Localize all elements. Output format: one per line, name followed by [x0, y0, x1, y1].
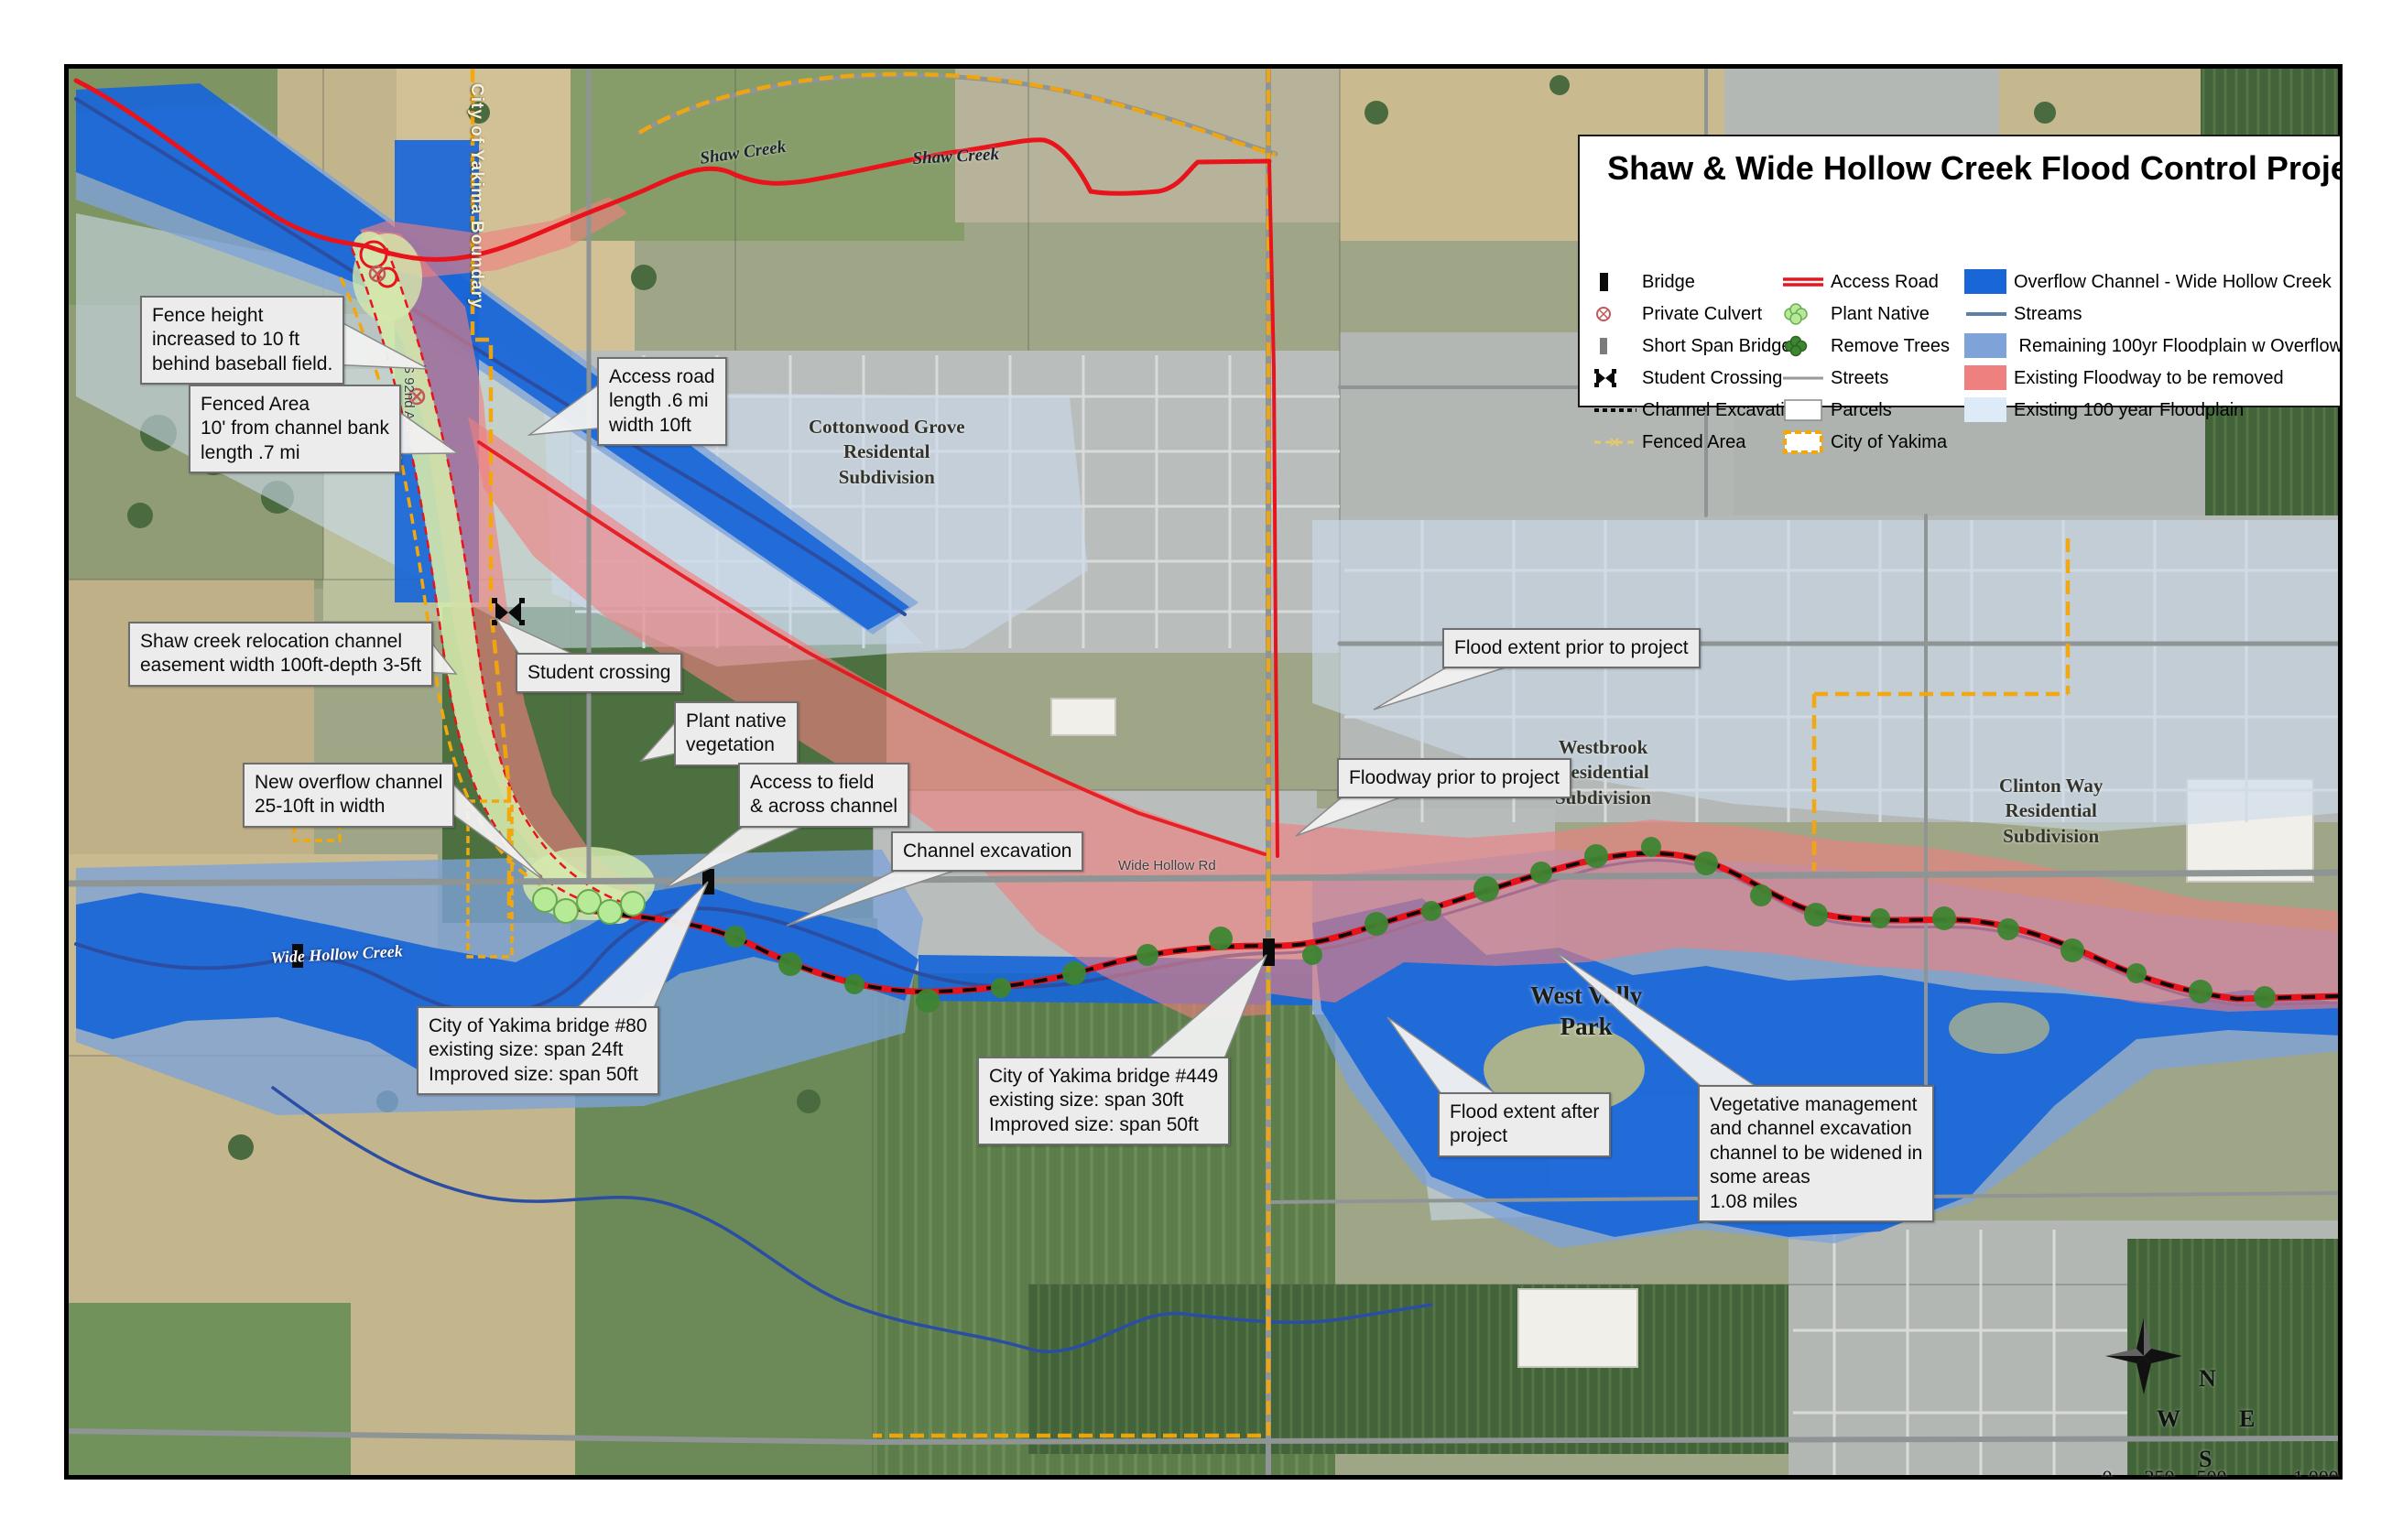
callout-student-crossing: Student crossing: [516, 653, 682, 693]
legend-item: Overflow Channel - Wide Hollow Creek: [1964, 270, 2343, 294]
legend-item-label: Student Crossing: [1642, 368, 1782, 389]
callout-line: easement width 100ft-depth 3-5ft: [140, 654, 421, 678]
callout-shaw-relocation: Shaw creek relocation channeleasement wi…: [128, 622, 433, 687]
callout-line: vegetation: [686, 733, 787, 757]
legend-item: City of Yakima: [1781, 430, 1961, 454]
callout-line: existing size: span 24ft: [429, 1038, 647, 1062]
legend-item: Streets: [1781, 366, 1961, 390]
legend-item-label: City of Yakima: [1831, 432, 1947, 453]
legend-item-label: Plant Native: [1831, 304, 1930, 325]
legend-item: Existing 100 year Floodplain: [1964, 398, 2343, 422]
callout-line: project: [1450, 1124, 1599, 1148]
callout-line: Channel excavation: [903, 840, 1071, 863]
callout-fence-height: Fence heightincreased to 10 ftbehind bas…: [140, 296, 344, 385]
callout-line: Improved size: span 50ft: [429, 1063, 647, 1087]
callout-line: length .7 mi: [201, 441, 389, 465]
callout-line: Flood extent prior to project: [1454, 636, 1689, 660]
legend-item-label: Remaining 100yr Floodplain w Overflow Ch…: [2014, 336, 2343, 357]
legend-item: Private Culvert: [1593, 302, 1776, 326]
callout-line: Fenced Area: [201, 393, 389, 417]
map-canvas: Shaw CreekShaw CreekWide Hollow CreekWes…: [64, 64, 2343, 1480]
plant-native-icon: [1781, 301, 1831, 327]
legend-title: Shaw & Wide Hollow Creek Flood Control P…: [1580, 149, 2343, 188]
city-of-yakima-icon: [1781, 429, 1831, 455]
callout-line: Access road: [609, 365, 715, 389]
callout-fenced-area: Fenced Area10' from channel banklength .…: [189, 385, 401, 473]
callout-line: Improved size: span 50ft: [989, 1113, 1218, 1137]
callout-line: channel to be widened in: [1710, 1142, 1922, 1166]
callout-vegetative-management: Vegetative managementand channel excavat…: [1698, 1085, 1934, 1222]
access-road-icon: [1781, 269, 1831, 295]
callout-line: 10' from channel bank: [201, 417, 389, 440]
callout-line: Access to field: [750, 771, 897, 795]
legend-item: Streams: [1964, 302, 2343, 326]
callout-line: Flood extent after: [1450, 1101, 1599, 1124]
legend-item: Parcels: [1781, 398, 1961, 422]
callout-line: Vegetative management: [1710, 1093, 1922, 1117]
legend-item-label: Streets: [1831, 368, 1888, 389]
legend-item: Plant Native: [1781, 302, 1961, 326]
callout-line: some areas: [1710, 1166, 1922, 1189]
legend-item: Fenced Area: [1593, 430, 1776, 454]
legend-area-column: Overflow Channel - Wide Hollow CreekStre…: [1964, 270, 2343, 422]
overflow-channel-swatch: [1964, 269, 2014, 295]
legend-item-label: Existing 100 year Floodplain: [2014, 400, 2244, 421]
legend-panel: Shaw & Wide Hollow Creek Flood Control P…: [1578, 135, 2343, 407]
callout-line: 25-10ft in width: [255, 795, 442, 819]
callout-line: behind baseball field.: [152, 352, 332, 376]
callout-line: & across channel: [750, 795, 897, 819]
legend-item: Remove Trees: [1781, 334, 1961, 358]
legend-item: Student Crossing: [1593, 366, 1776, 390]
legend-item-label: Private Culvert: [1642, 304, 1762, 325]
callout-flood-extent-after: Flood extent afterproject: [1438, 1092, 1611, 1157]
callout-new-overflow: New overflow channel25-10ft in width: [243, 763, 454, 828]
legend-item-label: Bridge: [1642, 272, 1695, 293]
short-span-bridge-icon: [1593, 333, 1642, 359]
legend-item-label: Existing Floodway to be removed: [2014, 368, 2284, 389]
legend-symbol-column: BridgePrivate CulvertShort Span BridgeSt…: [1593, 270, 1776, 454]
callout-line: New overflow channel: [255, 771, 442, 795]
streets-icon: [1781, 365, 1831, 391]
legend-item-label: Short Span Bridge: [1642, 336, 1791, 357]
legend-item: Existing Floodway to be removed: [1964, 366, 2343, 390]
legend-item: Access Road: [1781, 270, 1961, 294]
remove-trees-icon: [1781, 333, 1831, 359]
map-page: Shaw CreekShaw CreekWide Hollow CreekWes…: [0, 0, 2381, 1540]
callout-line: City of Yakima bridge #449: [989, 1065, 1218, 1089]
legend-line-column: Access RoadPlant NativeRemove TreesStree…: [1781, 270, 1961, 454]
legend-item-label: Fenced Area: [1642, 432, 1745, 453]
callout-channel-excavation: Channel excavation: [891, 831, 1083, 872]
bridge-icon: [1593, 269, 1642, 295]
parcels-icon: [1781, 397, 1831, 423]
callout-line: Plant native: [686, 710, 787, 733]
callout-bridge-449: City of Yakima bridge #449existing size:…: [977, 1057, 1230, 1145]
callout-line: width 10ft: [609, 414, 715, 438]
existing-floodway-swatch: [1964, 365, 2014, 391]
callout-line: City of Yakima bridge #80: [429, 1014, 647, 1038]
legend-item-label: Parcels: [1831, 400, 1892, 421]
streams-line: [1964, 301, 2014, 327]
callout-floodway-prior: Floodway prior to project: [1337, 758, 1571, 798]
legend-item: Channel Excavation: [1593, 398, 1776, 422]
callout-line: Shaw creek relocation channel: [140, 630, 421, 654]
legend-item: Bridge: [1593, 270, 1776, 294]
existing-floodplain-swatch: [1964, 397, 2014, 423]
callout-line: Floodway prior to project: [1349, 766, 1560, 790]
legend-item: Remaining 100yr Floodplain w Overflow Ch…: [1964, 334, 2343, 358]
callout-line: increased to 10 ft: [152, 328, 332, 352]
legend-item-label: Remove Trees: [1831, 336, 1950, 357]
legend-item: Short Span Bridge: [1593, 334, 1776, 358]
callout-line: 1.08 miles: [1710, 1190, 1922, 1214]
callout-bridge-80: City of Yakima bridge #80existing size: …: [417, 1006, 659, 1095]
remaining-floodplain-swatch: [1964, 333, 2014, 359]
legend-item-label: Streams: [2014, 304, 2082, 325]
callout-line: existing size: span 30ft: [989, 1089, 1218, 1112]
callout-access-road: Access roadlength .6 miwidth 10ft: [597, 357, 727, 446]
legend-item-label: Overflow Channel - Wide Hollow Creek: [2014, 272, 2332, 293]
fenced-area-icon: [1593, 429, 1642, 455]
callout-flood-extent-prior: Flood extent prior to project: [1442, 628, 1701, 668]
legend-item-label: Access Road: [1831, 272, 1939, 293]
callout-line: Fence height: [152, 304, 332, 328]
student-crossing-icon: [1593, 365, 1642, 391]
callout-line: Student crossing: [527, 661, 670, 685]
callout-line: and channel excavation: [1710, 1117, 1922, 1141]
callout-access-field: Access to field& across channel: [738, 763, 909, 828]
callout-plant-native: Plant nativevegetation: [674, 701, 799, 766]
callout-line: length .6 mi: [609, 389, 715, 413]
private-culvert-icon: [1593, 301, 1642, 327]
channel-excavation-icon: [1593, 397, 1642, 423]
